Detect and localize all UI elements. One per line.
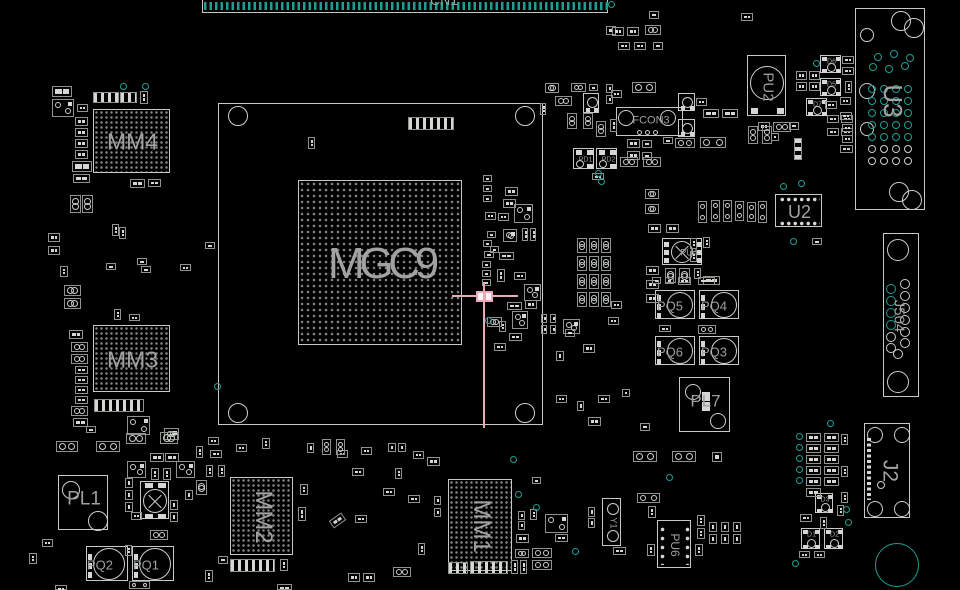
passive-component[interactable] [697,528,705,539]
passive-component[interactable] [484,251,494,258]
passive-component[interactable] [555,96,572,106]
passive-component[interactable] [72,161,92,172]
passive-component[interactable] [75,366,88,374]
passive-component[interactable] [434,496,441,505]
passive-component[interactable] [112,224,119,236]
passive-component[interactable] [71,342,88,352]
passive-component[interactable] [196,446,203,458]
passive-component[interactable] [589,274,599,289]
passive-component[interactable] [643,157,661,167]
passive-component[interactable] [408,495,420,503]
passive-component[interactable] [565,329,575,337]
passive-component[interactable] [120,92,137,103]
passive-component[interactable] [208,437,219,445]
passive-component[interactable] [518,511,525,520]
component-PL1[interactable]: PL1 [58,475,108,530]
passive-component[interactable] [511,560,518,574]
passive-component[interactable] [842,124,853,132]
component-D6[interactable]: D6 [820,55,841,73]
passive-component[interactable] [485,212,496,220]
passive-component[interactable] [73,174,90,183]
passive-component[interactable] [796,71,807,80]
passive-component[interactable] [487,231,496,238]
chip-component[interactable] [52,99,74,117]
passive-component[interactable] [632,82,656,93]
component-PQ5[interactable]: PQ5 [655,290,695,319]
passive-component[interactable] [48,233,60,242]
passive-component[interactable] [75,376,88,384]
passive-component[interactable] [709,534,717,544]
passive-component[interactable] [618,42,630,50]
passive-component[interactable] [842,67,854,75]
passive-component[interactable] [809,71,820,80]
passive-component[interactable] [690,238,697,249]
passive-component[interactable] [709,522,717,532]
passive-component[interactable] [505,187,518,196]
passive-component[interactable] [236,444,247,452]
passive-component[interactable] [748,126,758,144]
passive-component[interactable] [64,285,81,296]
passive-component[interactable] [695,544,703,556]
passive-component[interactable] [640,423,650,431]
chip-component[interactable] [176,461,195,478]
passive-component[interactable] [545,83,559,93]
passive-component[interactable] [448,562,468,574]
component-PQ2[interactable]: PQ2 [86,546,128,581]
component-MM3[interactable]: MM3 [93,325,170,392]
passive-component[interactable] [733,522,741,532]
passive-component[interactable] [589,256,599,271]
passive-component[interactable] [611,90,622,98]
passive-component[interactable] [307,443,314,453]
component-PL7[interactable]: PL7 [679,377,730,432]
passive-component[interactable] [820,517,827,529]
component-PQ6[interactable]: PQ6 [655,336,695,365]
passive-component[interactable] [393,567,411,577]
passive-component[interactable] [642,140,652,148]
passive-component[interactable] [697,515,705,526]
passive-component[interactable] [520,560,527,574]
passive-component[interactable] [627,139,640,148]
passive-component[interactable] [70,195,81,213]
passive-component[interactable] [408,117,454,130]
passive-component[interactable] [329,513,346,529]
passive-component[interactable] [56,441,78,452]
passive-component[interactable] [611,301,622,309]
passive-component[interactable] [218,465,225,477]
passive-component[interactable] [75,139,88,148]
passive-component[interactable] [806,433,821,442]
passive-component[interactable] [589,292,599,307]
passive-component[interactable] [363,573,375,582]
passive-component[interactable] [77,104,88,112]
passive-component[interactable] [550,314,556,323]
passive-component[interactable] [277,584,292,590]
component-MGC9[interactable]: MGC9 [298,180,462,345]
passive-component[interactable] [827,115,839,123]
passive-component[interactable] [210,450,222,458]
passive-component[interactable] [165,453,179,462]
passive-component[interactable] [75,117,88,126]
passive-component[interactable] [262,438,270,449]
component-PD2[interactable]: PD2 [596,148,617,169]
passive-component[interactable] [648,506,656,518]
passive-component[interactable] [627,27,639,36]
passive-component[interactable] [652,277,661,284]
chip-component[interactable] [514,204,533,223]
component-PQ4[interactable]: PQ4 [699,290,739,319]
passive-component[interactable] [645,204,659,214]
component-D5[interactable]: D5 [820,78,841,96]
component[interactable] [583,93,599,113]
component-PQ3[interactable]: PQ3 [699,336,739,365]
passive-component[interactable] [185,490,193,500]
selected-component-highlight[interactable] [476,291,493,302]
passive-component[interactable] [398,443,406,452]
passive-component[interactable] [842,56,854,64]
passive-component[interactable] [620,157,638,167]
passive-component[interactable] [773,122,791,132]
passive-component[interactable] [588,417,601,426]
passive-component[interactable] [653,42,663,50]
passive-component[interactable] [530,509,537,520]
passive-component[interactable] [308,137,315,149]
passive-component[interactable] [675,138,695,148]
passive-component[interactable] [151,468,159,480]
passive-component[interactable] [747,202,756,222]
component[interactable] [140,481,169,519]
passive-component[interactable] [596,121,606,137]
component-D7[interactable]: D7 [806,98,827,116]
passive-component[interactable] [75,150,88,159]
passive-component[interactable] [588,507,595,517]
passive-component[interactable] [42,539,53,547]
passive-component[interactable] [678,277,691,285]
passive-component[interactable] [589,84,598,91]
component-J2[interactable]: J2 [864,423,910,518]
passive-component[interactable] [796,82,807,91]
passive-component[interactable] [230,559,275,572]
passive-component[interactable] [556,351,564,361]
passive-component[interactable] [698,277,715,285]
passive-component[interactable] [52,86,72,97]
passive-component[interactable] [601,274,611,289]
passive-component[interactable] [418,543,425,555]
passive-component[interactable] [840,97,851,105]
passive-component[interactable] [645,189,659,199]
passive-component[interactable] [634,42,646,50]
passive-component[interactable] [845,81,852,93]
passive-component[interactable] [280,559,288,571]
passive-component[interactable] [94,399,144,412]
passive-component[interactable] [497,269,505,282]
passive-component[interactable] [170,512,178,522]
component-MM2[interactable]: MM2 [230,477,293,555]
passive-component[interactable] [129,314,140,321]
component-D2[interactable]: D2 [824,528,843,549]
passive-component[interactable] [758,201,767,223]
passive-component[interactable] [352,468,364,476]
passive-component[interactable] [131,512,142,520]
passive-component[interactable] [482,270,491,277]
passive-component[interactable] [556,395,567,403]
passive-component[interactable] [583,113,593,129]
passive-component[interactable] [532,560,552,570]
passive-component[interactable] [806,455,821,464]
passive-component[interactable] [824,477,839,486]
passive-component[interactable] [322,439,331,455]
passive-component[interactable] [601,256,611,271]
passive-component[interactable] [613,547,626,555]
passive-component[interactable] [29,553,37,564]
passive-component[interactable] [150,530,168,540]
passive-component[interactable] [722,109,738,118]
passive-component[interactable] [723,200,732,222]
passive-component[interactable] [483,195,492,202]
passive-component[interactable] [499,252,514,260]
passive-component[interactable] [71,354,88,364]
passive-component[interactable] [648,224,661,233]
passive-component[interactable] [703,109,719,118]
passive-component[interactable] [507,302,522,310]
passive-component[interactable] [427,457,440,466]
passive-component[interactable] [812,238,822,245]
passive-component[interactable] [82,195,93,213]
passive-component[interactable] [541,325,547,334]
passive-component[interactable] [663,137,673,144]
passive-component[interactable] [800,514,812,522]
passive-component[interactable] [48,246,60,255]
chip-component[interactable] [545,514,568,533]
passive-component[interactable] [571,83,586,92]
passive-component[interactable] [361,447,372,455]
component-U2[interactable]: U2 [775,194,822,227]
passive-component[interactable] [137,258,147,265]
passive-component[interactable] [71,406,88,416]
passive-component[interactable] [205,242,215,249]
passive-component[interactable] [483,175,492,182]
passive-component[interactable] [567,113,577,129]
passive-component[interactable] [703,237,710,248]
passive-component[interactable] [735,201,744,221]
passive-component[interactable] [806,477,821,486]
passive-component[interactable] [336,439,345,455]
passive-component[interactable] [93,92,119,103]
passive-component[interactable] [530,228,536,241]
component-PU2[interactable]: PU2 [747,55,786,116]
passive-component[interactable] [498,213,509,221]
passive-component[interactable] [827,128,839,136]
passive-component[interactable] [733,534,741,544]
chip-component[interactable] [503,229,517,242]
passive-component[interactable] [180,264,191,271]
passive-component[interactable] [601,238,611,253]
passive-component[interactable] [646,266,659,275]
passive-component[interactable] [809,82,820,91]
passive-component[interactable] [114,309,121,320]
passive-component[interactable] [637,493,660,503]
passive-component[interactable] [483,185,492,192]
passive-component[interactable] [696,98,707,106]
passive-component[interactable] [672,451,696,462]
passive-component[interactable] [649,11,659,19]
passive-component[interactable] [129,581,150,589]
passive-component[interactable] [355,515,367,523]
passive-component[interactable] [841,434,848,445]
passive-component[interactable] [482,261,491,268]
passive-component[interactable] [841,492,848,503]
passive-component[interactable] [841,466,848,477]
passive-component[interactable] [388,443,396,452]
passive-component[interactable] [518,521,525,530]
passive-component[interactable] [824,433,839,442]
component[interactable] [678,119,695,137]
passive-component[interactable] [598,395,610,403]
passive-component[interactable] [60,266,68,277]
component-MM4[interactable]: MM4 [93,109,170,173]
passive-component[interactable] [125,502,133,512]
passive-component[interactable] [700,137,726,148]
passive-component[interactable] [646,294,659,303]
passive-component[interactable] [125,490,133,500]
passive-component[interactable] [612,27,624,36]
passive-component[interactable] [771,133,779,141]
passive-component[interactable] [721,534,729,544]
passive-component[interactable] [515,549,529,558]
chip-component[interactable] [127,461,146,478]
passive-component[interactable] [762,126,772,144]
passive-component[interactable] [170,500,178,510]
passive-component[interactable] [577,274,587,289]
passive-component[interactable] [588,518,595,528]
passive-component[interactable] [824,444,839,453]
passive-component[interactable] [666,224,679,233]
passive-component[interactable] [509,333,522,341]
passive-component[interactable] [55,585,67,590]
passive-component[interactable] [577,256,587,271]
passive-component[interactable] [298,507,306,521]
passive-component[interactable] [64,298,81,309]
edge-connector[interactable]: CN1 [202,0,608,13]
passive-component[interactable] [659,325,671,332]
passive-component[interactable] [711,200,720,222]
passive-component[interactable] [206,465,213,477]
component-Y1[interactable]: Y1 [602,498,621,546]
passive-component[interactable] [698,201,707,223]
component-U3[interactable]: U3 [855,8,925,210]
passive-component[interactable] [712,452,722,462]
passive-component[interactable] [806,488,821,497]
passive-component[interactable] [647,544,655,556]
passive-component[interactable] [577,401,584,411]
passive-component[interactable] [541,314,547,323]
component-MM1[interactable]: MM1 [448,479,512,571]
passive-component[interactable] [794,138,802,160]
passive-component[interactable] [601,292,611,307]
passive-component[interactable] [470,561,508,574]
passive-component[interactable] [96,441,120,452]
passive-component[interactable] [824,455,839,464]
passive-component[interactable] [633,451,657,462]
passive-component[interactable] [608,317,619,325]
passive-component[interactable] [395,468,402,479]
passive-component[interactable] [494,343,506,351]
passive-component[interactable] [610,119,617,132]
passive-component[interactable] [741,13,753,21]
passive-component[interactable] [125,478,133,488]
passive-component[interactable] [205,570,213,582]
passive-component[interactable] [141,266,151,273]
passive-component[interactable] [130,179,145,188]
passive-component[interactable] [348,573,360,582]
component-J504[interactable]: J504 [883,233,919,397]
passive-component[interactable] [75,396,88,404]
passive-component[interactable] [840,145,853,153]
passive-component[interactable] [383,488,395,496]
component-PD1[interactable]: PD1 [573,148,594,169]
passive-component[interactable] [622,389,630,397]
passive-component[interactable] [555,534,568,542]
passive-component[interactable] [150,453,164,462]
passive-component[interactable] [589,238,599,253]
passive-component[interactable] [434,508,441,517]
passive-component[interactable] [525,300,537,309]
passive-component[interactable] [806,466,821,475]
passive-component[interactable] [698,325,716,334]
passive-component[interactable] [577,292,587,307]
component-PU6[interactable]: PU6 [657,520,691,568]
passive-component[interactable] [806,444,821,453]
passive-component[interactable] [532,477,541,484]
passive-component[interactable] [119,227,126,239]
passive-component[interactable] [532,548,552,558]
passive-component[interactable] [125,545,132,556]
passive-component[interactable] [577,238,587,253]
passive-component[interactable] [148,179,161,187]
passive-component[interactable] [86,426,96,433]
passive-component[interactable] [75,386,88,394]
passive-component[interactable] [160,432,178,444]
passive-component[interactable] [583,344,595,353]
component-D1[interactable]: D1 [801,528,820,549]
passive-component[interactable] [516,534,529,543]
chip-component[interactable] [524,284,541,301]
passive-component[interactable] [514,272,526,280]
passive-component[interactable] [842,135,853,143]
passive-component[interactable] [840,112,852,120]
passive-component[interactable] [106,263,116,270]
passive-component[interactable] [690,251,697,262]
passive-component[interactable] [140,91,148,104]
component-FCON3[interactable]: FCON3 [616,107,683,136]
passive-component[interactable] [814,551,825,558]
chip-component[interactable] [512,311,528,329]
passive-component[interactable] [75,128,88,137]
passive-component[interactable] [645,25,661,35]
passive-component[interactable] [413,451,424,459]
passive-component[interactable] [163,468,171,480]
passive-component[interactable] [499,321,506,332]
passive-component[interactable] [300,484,308,495]
passive-component[interactable] [126,433,146,444]
component-PQ1[interactable]: PQ1 [132,546,174,581]
passive-component[interactable] [540,103,546,115]
passive-component[interactable] [522,228,528,241]
passive-component[interactable] [69,330,83,339]
passive-component[interactable] [799,551,810,558]
component[interactable] [678,93,695,111]
passive-component[interactable] [218,556,228,564]
